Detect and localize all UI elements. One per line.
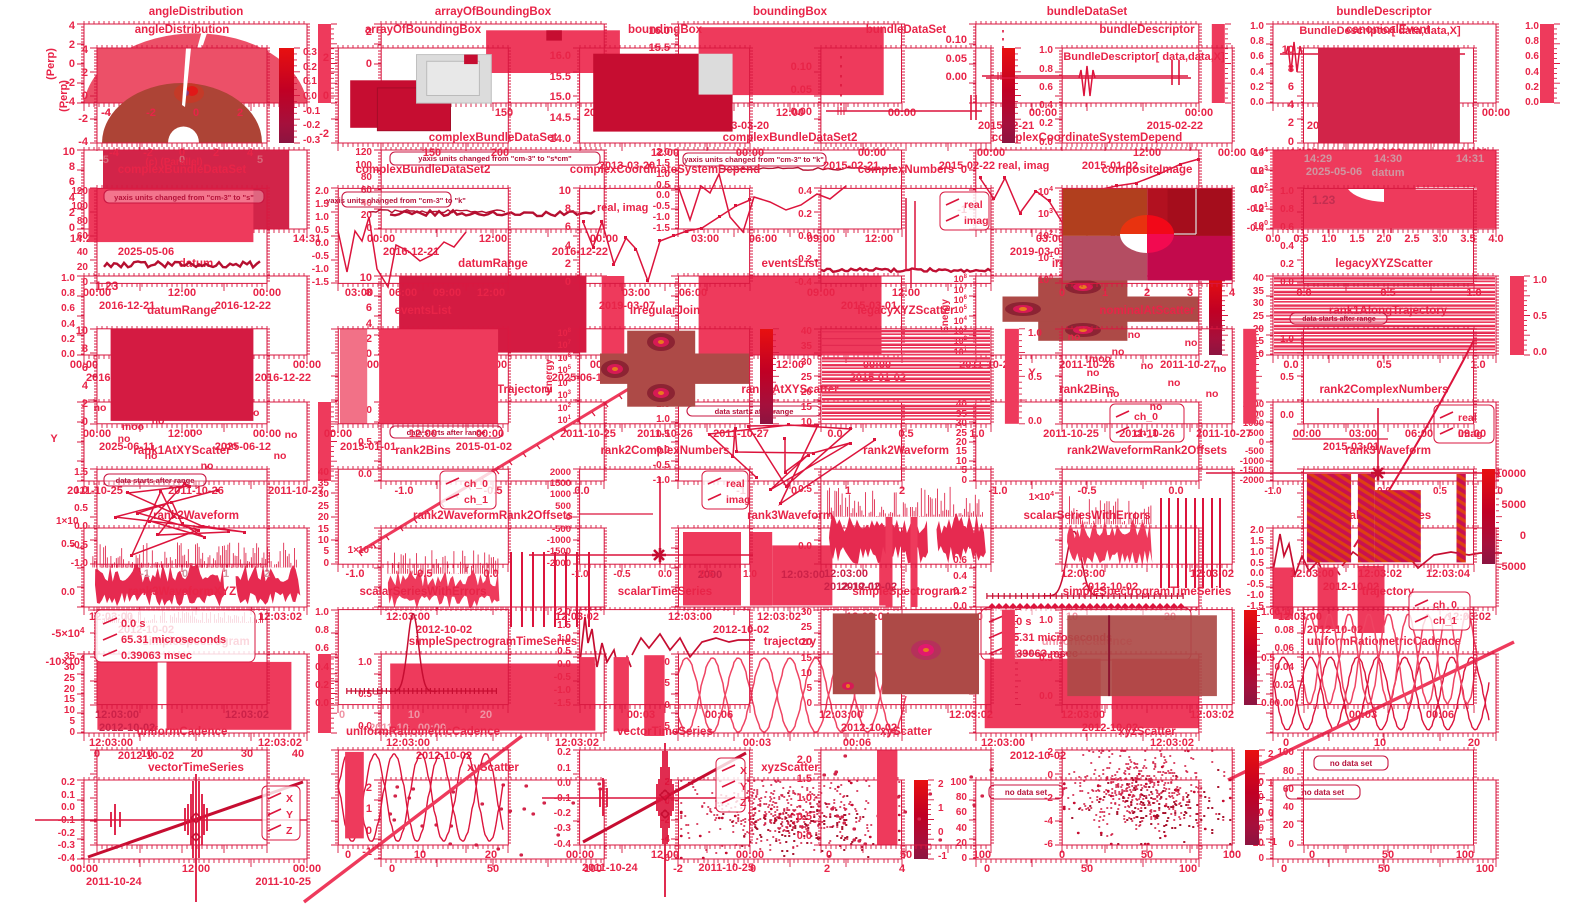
svg-text:0: 0	[82, 90, 88, 102]
svg-text:imag: imag	[964, 215, 989, 227]
svg-text:20: 20	[485, 849, 497, 861]
svg-text:0.6: 0.6	[1280, 222, 1294, 233]
svg-text:14.0: 14.0	[550, 133, 571, 145]
svg-text:2015-02-22: 2015-02-22	[1147, 120, 1203, 132]
svg-text:30: 30	[64, 662, 76, 673]
svg-text:1.5: 1.5	[1250, 536, 1264, 547]
svg-text:00:06: 00:06	[1426, 709, 1454, 721]
svg-text:uniformCadence: uniformCadence	[137, 726, 228, 738]
svg-text:2016-12-22: 2016-12-22	[215, 300, 271, 312]
svg-text:5: 5	[323, 546, 329, 557]
svg-text:2015-01-01: 2015-01-01	[340, 441, 396, 453]
svg-text:0.0: 0.0	[1525, 97, 1539, 108]
svg-text:2000: 2000	[550, 467, 571, 478]
svg-text:Y: Y	[1028, 367, 1036, 379]
svg-text:0: 0	[366, 58, 372, 70]
svg-text:0.05: 0.05	[791, 84, 812, 96]
svg-text:2011-10-24: 2011-10-24	[86, 876, 143, 888]
svg-text:0.0: 0.0	[827, 428, 842, 440]
svg-text:BundleDescriptor[ data,data,X]: BundleDescriptor[ data,data,X]	[1063, 51, 1225, 63]
svg-text:0: 0	[193, 107, 199, 119]
svg-text:0.5: 0.5	[797, 811, 812, 823]
svg-text:40: 40	[318, 467, 330, 478]
svg-text:0: 0	[339, 709, 345, 721]
svg-text:0.0: 0.0	[1250, 568, 1264, 579]
svg-text:0: 0	[345, 849, 351, 861]
svg-text:12:03:00: 12:03:00	[824, 568, 868, 580]
svg-text:no data set: no data set	[1330, 759, 1373, 768]
svg-text:-0.3: -0.3	[58, 840, 76, 851]
svg-text:uniformRatiometricCadence: uniformRatiometricCadence	[1307, 636, 1461, 648]
svg-text:2012-10-02: 2012-10-02	[1010, 750, 1066, 762]
svg-text:-0.2: -0.2	[303, 120, 321, 131]
svg-text:0.3: 0.3	[303, 47, 317, 58]
svg-text:0: 0	[1047, 770, 1053, 781]
svg-text:0.5: 0.5	[1533, 311, 1547, 322]
svg-text:15: 15	[801, 402, 813, 413]
svg-text:bundleDescriptor: bundleDescriptor	[1336, 6, 1432, 18]
svg-text:no: no	[1141, 360, 1154, 372]
svg-text:0.5: 0.5	[1261, 653, 1275, 664]
svg-text:12:03:00: 12:03:00	[981, 737, 1025, 749]
svg-text:1×: 1×	[348, 545, 360, 556]
svg-text:2: 2	[938, 779, 944, 790]
svg-text:1.0: 1.0	[1280, 186, 1294, 197]
svg-text:1.0: 1.0	[1533, 275, 1547, 286]
svg-text:0.0: 0.0	[303, 91, 317, 102]
svg-text:real, imag: real, imag	[998, 160, 1049, 172]
svg-text:14:30: 14:30	[1374, 153, 1402, 165]
svg-text:(Perp): (Perp)	[58, 80, 70, 112]
svg-text:0: 0	[565, 276, 571, 288]
svg-text:00:06: 00:06	[843, 737, 871, 749]
svg-text:10: 10	[414, 849, 426, 861]
svg-text:8: 8	[82, 343, 88, 355]
svg-text:0.0: 0.0	[1533, 347, 1547, 358]
svg-text:complexBundleDataSet: complexBundleDataSet	[429, 132, 558, 144]
svg-text:data starts after range: data starts after range	[116, 476, 195, 485]
svg-text:0: 0	[1288, 839, 1294, 850]
svg-text:1×: 1×	[1029, 492, 1041, 503]
svg-text:-5: -5	[99, 154, 109, 166]
svg-text:2: 2	[565, 258, 571, 270]
svg-text:2: 2	[69, 39, 75, 51]
svg-text:5000: 5000	[1502, 499, 1526, 511]
svg-text:12:03:00: 12:03:00	[386, 611, 430, 623]
svg-text:0.4: 0.4	[1280, 241, 1294, 252]
svg-text:0.0: 0.0	[798, 541, 812, 552]
svg-text:no: no	[1168, 377, 1181, 389]
svg-text:10: 10	[559, 185, 571, 197]
svg-text:8: 8	[1288, 63, 1294, 75]
svg-text:0: 0	[182, 568, 188, 580]
svg-text:35: 35	[318, 478, 330, 489]
svg-text:35: 35	[801, 341, 813, 352]
svg-text:0: 0	[791, 485, 797, 497]
svg-text:-1.5: -1.5	[554, 698, 572, 709]
svg-text:10: 10	[801, 417, 813, 428]
svg-text:25: 25	[801, 622, 813, 633]
svg-text:-0.1: -0.1	[58, 815, 76, 826]
svg-text:0.0: 0.0	[1039, 691, 1053, 702]
svg-text:no: no	[285, 429, 298, 441]
svg-text:0.0: 0.0	[61, 587, 75, 598]
svg-text:0.0: 0.0	[1280, 410, 1294, 421]
svg-text:1.5: 1.5	[1349, 233, 1364, 245]
svg-text:rank2WaveformRank2Offsets: rank2WaveformRank2Offsets	[413, 510, 573, 522]
svg-text:4: 4	[1288, 99, 1295, 111]
svg-text:0.0: 0.0	[315, 238, 329, 249]
svg-text:60: 60	[77, 231, 89, 242]
svg-text:-1.5: -1.5	[312, 277, 330, 288]
svg-text:compositeImage: compositeImage	[1102, 164, 1193, 176]
svg-text:-1.5: -1.5	[653, 223, 671, 234]
svg-text:12:03:00: 12:03:00	[1061, 568, 1105, 580]
svg-text:-2000: -2000	[547, 558, 571, 569]
svg-text:0.10: 0.10	[791, 61, 812, 73]
svg-text:0.0: 0.0	[315, 698, 329, 709]
svg-text:00:00: 00:00	[1293, 428, 1321, 440]
svg-text:no: no	[1185, 337, 1198, 349]
svg-text:12:03:00: 12:03:00	[668, 611, 712, 623]
svg-text:arrayOfBoundingBox: arrayOfBoundingBox	[435, 6, 552, 18]
svg-text:00:03: 00:03	[1349, 709, 1377, 721]
svg-text:1.0: 1.0	[358, 657, 372, 668]
svg-text:00:06: 00:06	[705, 709, 733, 721]
svg-text:1.0: 1.0	[1470, 359, 1485, 371]
svg-text:500: 500	[555, 501, 571, 512]
svg-text:15: 15	[801, 653, 813, 664]
svg-text:Y: Y	[286, 809, 293, 821]
svg-text:0.4: 0.4	[798, 186, 812, 197]
svg-text:1.0: 1.0	[1039, 615, 1053, 626]
svg-text:simpleSpectrogram: simpleSpectrogram	[852, 586, 959, 598]
svg-text:yaxis units changed from "cm-3: yaxis units changed from "cm-3" to "s"	[114, 193, 254, 202]
svg-text:0.6: 0.6	[315, 643, 329, 654]
svg-text:2011-10-25: 2011-10-25	[698, 862, 754, 874]
svg-text:no: no	[1112, 346, 1125, 358]
svg-text:4: 4	[565, 240, 572, 252]
svg-text:8: 8	[565, 203, 571, 215]
svg-text:yaxis units changed from "cm-3: yaxis units changed from "cm-3" to "k"	[326, 196, 466, 205]
svg-text:2: 2	[323, 52, 329, 64]
svg-text:0: 0	[1258, 853, 1264, 864]
svg-text:-0.2: -0.2	[58, 828, 76, 839]
svg-text:0.2: 0.2	[1280, 259, 1294, 270]
svg-text:-1.0: -1.0	[346, 568, 365, 580]
svg-text:bundleDataSet: bundleDataSet	[1047, 6, 1128, 18]
svg-text:4: 4	[82, 44, 89, 56]
svg-text:2011-10-24: 2011-10-24	[582, 862, 639, 874]
svg-text:80: 80	[956, 792, 968, 803]
svg-text:legacyXYZScatter: legacyXYZScatter	[1335, 258, 1433, 270]
svg-text:-0.3: -0.3	[303, 135, 321, 146]
svg-text:100: 100	[1277, 747, 1294, 758]
svg-text:1.5: 1.5	[797, 773, 812, 785]
svg-text:moo: moo	[1089, 353, 1111, 365]
svg-text:rank2WaveformRank2Offsets: rank2WaveformRank2Offsets	[1067, 445, 1227, 457]
svg-text:0: 0	[961, 475, 967, 486]
svg-text:35: 35	[64, 651, 76, 662]
svg-text:Y: Y	[740, 781, 747, 793]
svg-text:0.5: 0.5	[315, 225, 329, 236]
svg-text:0.5: 0.5	[557, 646, 571, 657]
svg-text:100: 100	[973, 849, 991, 861]
svg-text:-0.2: -0.2	[795, 254, 813, 265]
svg-text:1.0: 1.0	[557, 633, 571, 644]
svg-text:0.0: 0.0	[656, 190, 670, 201]
svg-text:12:03:02: 12:03:02	[757, 611, 801, 623]
svg-text:14:31: 14:31	[1456, 153, 1484, 165]
svg-text:boundingBox: boundingBox	[628, 24, 703, 36]
svg-text:-1500: -1500	[547, 546, 571, 557]
svg-text:0.6: 0.6	[1250, 51, 1264, 62]
svg-text:-0.1: -0.1	[554, 793, 572, 804]
svg-text:-1.0: -1.0	[312, 264, 330, 275]
svg-text:2015-01-02: 2015-01-02	[456, 441, 512, 453]
svg-text:0.39063 msec: 0.39063 msec	[121, 650, 192, 662]
svg-text:0.2: 0.2	[1525, 82, 1539, 93]
svg-text:1.0: 1.0	[1280, 334, 1294, 345]
svg-text:Energy: Energy	[544, 359, 555, 393]
svg-text:1500: 1500	[550, 478, 571, 489]
svg-text:5: 5	[806, 683, 812, 694]
svg-text:2011-10-25: 2011-10-25	[560, 428, 616, 440]
svg-text:06:00: 06:00	[749, 233, 777, 245]
svg-text:40: 40	[1283, 802, 1295, 813]
svg-text:4: 4	[69, 20, 76, 32]
svg-text:-0.1: -0.1	[303, 106, 321, 117]
svg-text:20: 20	[77, 262, 89, 273]
svg-text:0.0: 0.0	[61, 802, 75, 813]
svg-text:real: real	[726, 478, 745, 490]
svg-text:-500: -500	[552, 524, 571, 535]
svg-text:-1.0: -1.0	[395, 485, 414, 497]
svg-text:12:03:00: 12:03:00	[95, 709, 139, 721]
svg-text:simpleSpectrogramTimeSeries: simpleSpectrogramTimeSeries	[1063, 586, 1232, 598]
svg-text:1.5: 1.5	[315, 199, 329, 210]
svg-text:2012-10-02: 2012-10-02	[713, 624, 769, 636]
svg-text:-1: -1	[140, 568, 150, 580]
svg-text:12:03:00: 12:03:00	[1290, 568, 1334, 580]
svg-text:complexBundleDataSet2: complexBundleDataSet2	[723, 132, 858, 144]
svg-text:2: 2	[1288, 117, 1294, 129]
svg-text:25: 25	[64, 673, 76, 684]
svg-text:trajectory: trajectory	[1362, 586, 1415, 598]
svg-text:no: no	[1068, 331, 1081, 343]
svg-text:2.0: 2.0	[557, 607, 571, 618]
svg-text:65.31 microseconds: 65.31 microseconds	[121, 634, 226, 646]
svg-text:4: 4	[80, 626, 85, 635]
svg-text:00:03: 00:03	[743, 737, 771, 749]
svg-text:2011-10-27: 2011-10-27	[1160, 359, 1216, 371]
svg-text:0.0: 0.0	[797, 830, 812, 842]
svg-text:rank2ComplexNumbers: rank2ComplexNumbers	[1319, 384, 1448, 396]
svg-text:0: 0	[1268, 808, 1274, 819]
svg-text:0: 0	[961, 853, 967, 864]
svg-text:Y: Y	[50, 433, 58, 445]
svg-text:0.10: 0.10	[946, 34, 967, 46]
svg-text:xyzScatter: xyzScatter	[1118, 726, 1176, 738]
svg-text:00:03: 00:03	[627, 709, 655, 721]
svg-text:-0.3: -0.3	[554, 823, 572, 834]
svg-text:-1.0: -1.0	[554, 685, 572, 696]
svg-text:0.6: 0.6	[1039, 82, 1053, 93]
svg-text:ch_1: ch_1	[1433, 615, 1457, 627]
svg-text:0.2: 0.2	[303, 62, 317, 73]
svg-text:100: 100	[950, 777, 967, 788]
svg-text:12:03:00: 12:03:00	[1061, 709, 1105, 721]
svg-text:-4: -4	[101, 107, 112, 119]
svg-text:X: X	[740, 765, 747, 777]
svg-text:100: 100	[1476, 863, 1494, 875]
svg-text:03:00: 03:00	[345, 287, 373, 299]
svg-text:2011-10-27: 2011-10-27	[1196, 428, 1252, 440]
svg-text:-2: -2	[146, 107, 156, 119]
svg-text:2025-05-06: 2025-05-06	[118, 246, 174, 258]
svg-text:4: 4	[247, 147, 254, 159]
svg-text:0.1: 0.1	[557, 763, 571, 774]
svg-text:2.0: 2.0	[315, 186, 329, 197]
svg-text:0.5: 0.5	[1039, 653, 1053, 664]
svg-text:2016-12-22: 2016-12-22	[255, 372, 311, 384]
svg-text:150: 150	[423, 147, 441, 159]
svg-text:1: 1	[1268, 778, 1274, 789]
svg-text:10: 10	[360, 272, 372, 284]
svg-text:bundleDescriptor: bundleDescriptor	[1099, 24, 1195, 36]
svg-text:10: 10	[1282, 44, 1294, 56]
svg-text:0.4: 0.4	[315, 662, 329, 673]
svg-text:angleDistribution: angleDistribution	[135, 24, 230, 36]
svg-text:0.4: 0.4	[1250, 67, 1264, 78]
svg-text:2025-05-06: 2025-05-06	[1306, 166, 1362, 178]
svg-text:1.0: 1.0	[1028, 328, 1042, 339]
svg-text:uniformRatiometricCadence: uniformRatiometricCadence	[346, 726, 500, 738]
svg-text:0.0: 0.0	[358, 469, 372, 480]
svg-text:-0.5: -0.5	[1247, 579, 1265, 590]
svg-text:rank2ComplexNumbers: rank2ComplexNumbers	[600, 445, 729, 457]
svg-text:2011-10-25: 2011-10-25	[1043, 428, 1099, 440]
svg-text:20: 20	[480, 709, 492, 721]
svg-text:no data set: no data set	[1302, 788, 1345, 797]
svg-text:0.0: 0.0	[1250, 97, 1264, 108]
svg-text:0.04: 0.04	[1275, 662, 1295, 673]
svg-text:25: 25	[318, 501, 330, 512]
svg-text:80: 80	[1283, 766, 1295, 777]
svg-text:vectorTimeSeries: vectorTimeSeries	[617, 726, 713, 738]
svg-text:1.0: 1.0	[315, 212, 329, 223]
svg-text:ch_1: ch_1	[464, 494, 488, 506]
svg-text:simpleSpectrogramTimeSeries: simpleSpectrogramTimeSeries	[409, 636, 578, 648]
svg-text:20: 20	[801, 387, 813, 398]
svg-text:40: 40	[801, 326, 813, 337]
svg-text:40: 40	[956, 823, 968, 834]
svg-text:0.0: 0.0	[61, 349, 75, 360]
svg-text:200: 200	[491, 147, 509, 159]
svg-text:0.00: 0.00	[791, 106, 812, 118]
svg-text:60: 60	[1283, 784, 1295, 795]
svg-text:datumRange: datumRange	[147, 305, 217, 317]
svg-text:-0.5: -0.5	[312, 251, 330, 262]
svg-text:30: 30	[318, 489, 330, 500]
svg-text:2011-10-27: 2011-10-27	[268, 485, 324, 497]
svg-text:complexCoordinateSystemDepend: complexCoordinateSystemDepend	[992, 132, 1182, 144]
svg-text:14:29: 14:29	[1304, 153, 1332, 165]
svg-text:2.0: 2.0	[1250, 525, 1264, 536]
svg-text:120: 120	[71, 186, 88, 197]
svg-text:rank2Waveform: rank2Waveform	[863, 445, 949, 457]
svg-text:0.8: 0.8	[61, 288, 75, 299]
svg-text:0: 0	[69, 58, 75, 70]
svg-text:0: 0	[323, 90, 329, 102]
svg-text:12:03:02: 12:03:02	[258, 611, 302, 623]
svg-text:2.0: 2.0	[797, 754, 812, 766]
svg-text:-4: -4	[1044, 816, 1053, 827]
svg-text:xyScatter: xyScatter	[880, 726, 932, 738]
svg-text:0.2: 0.2	[61, 334, 75, 345]
svg-text:irregularJoin: irregularJoin	[630, 305, 700, 317]
svg-text:06:00: 06:00	[1405, 428, 1433, 440]
svg-text:15: 15	[64, 694, 76, 705]
svg-text:0: 0	[1281, 863, 1287, 875]
svg-text:0.08: 0.08	[1275, 625, 1295, 636]
svg-text:09:00: 09:00	[433, 287, 461, 299]
svg-text:data starts after range: data starts after range	[1302, 316, 1376, 323]
svg-text:1.0: 1.0	[797, 792, 812, 804]
svg-text:2: 2	[237, 107, 243, 119]
svg-text:5: 5	[69, 716, 75, 727]
svg-text:angleDistribution: angleDistribution	[149, 6, 244, 18]
svg-text:complexBundleDataSet2: complexBundleDataSet2	[356, 164, 491, 176]
svg-text:0.05: 0.05	[946, 53, 967, 65]
svg-text:rank2Bins: rank2Bins	[395, 445, 451, 457]
svg-text:1: 1	[366, 803, 372, 815]
svg-text:100: 100	[71, 201, 88, 212]
svg-text:80: 80	[77, 216, 89, 227]
svg-text:no data set: no data set	[1005, 788, 1048, 797]
svg-text:10000: 10000	[1495, 468, 1526, 480]
svg-text:-1.0: -1.0	[1247, 590, 1265, 601]
svg-text:complexCoordinateSystemDepend: complexCoordinateSystemDepend	[570, 164, 760, 176]
svg-text:0.0: 0.0	[574, 485, 589, 497]
svg-text:12:03:02: 12:03:02	[949, 709, 993, 721]
svg-text:canonicalEvent: canonicalEvent	[1346, 24, 1431, 36]
svg-text:0.8: 0.8	[315, 625, 329, 636]
svg-text:real, imag: real, imag	[597, 202, 648, 214]
svg-text:boundingBox: boundingBox	[753, 6, 828, 18]
svg-text:14.5: 14.5	[550, 112, 571, 124]
svg-text:20: 20	[1283, 820, 1295, 831]
svg-text:0.6: 0.6	[61, 303, 75, 314]
svg-text:2011-10-27: 2011-10-27	[713, 428, 769, 440]
svg-text:0.02: 0.02	[1275, 680, 1295, 691]
svg-text:03:00: 03:00	[1349, 428, 1377, 440]
svg-text:0.5: 0.5	[1280, 372, 1294, 383]
svg-text:-2: -2	[1044, 793, 1053, 804]
svg-text:4: 4	[82, 380, 89, 392]
svg-text:0.6: 0.6	[1525, 51, 1539, 62]
svg-text:0.5: 0.5	[798, 484, 812, 495]
svg-text:-2000: -2000	[1240, 475, 1264, 486]
svg-text:-0.5: -0.5	[71, 540, 89, 551]
svg-text:20: 20	[318, 512, 330, 523]
svg-text:12:03:04: 12:03:04	[1426, 568, 1471, 580]
svg-text:0.4: 0.4	[953, 571, 967, 582]
svg-text:16.0: 16.0	[550, 50, 571, 62]
svg-text:scalarSeriesWithErrors: scalarSeriesWithErrors	[359, 586, 486, 598]
svg-text:no: no	[1150, 401, 1163, 413]
svg-text:0: 0	[323, 558, 329, 569]
